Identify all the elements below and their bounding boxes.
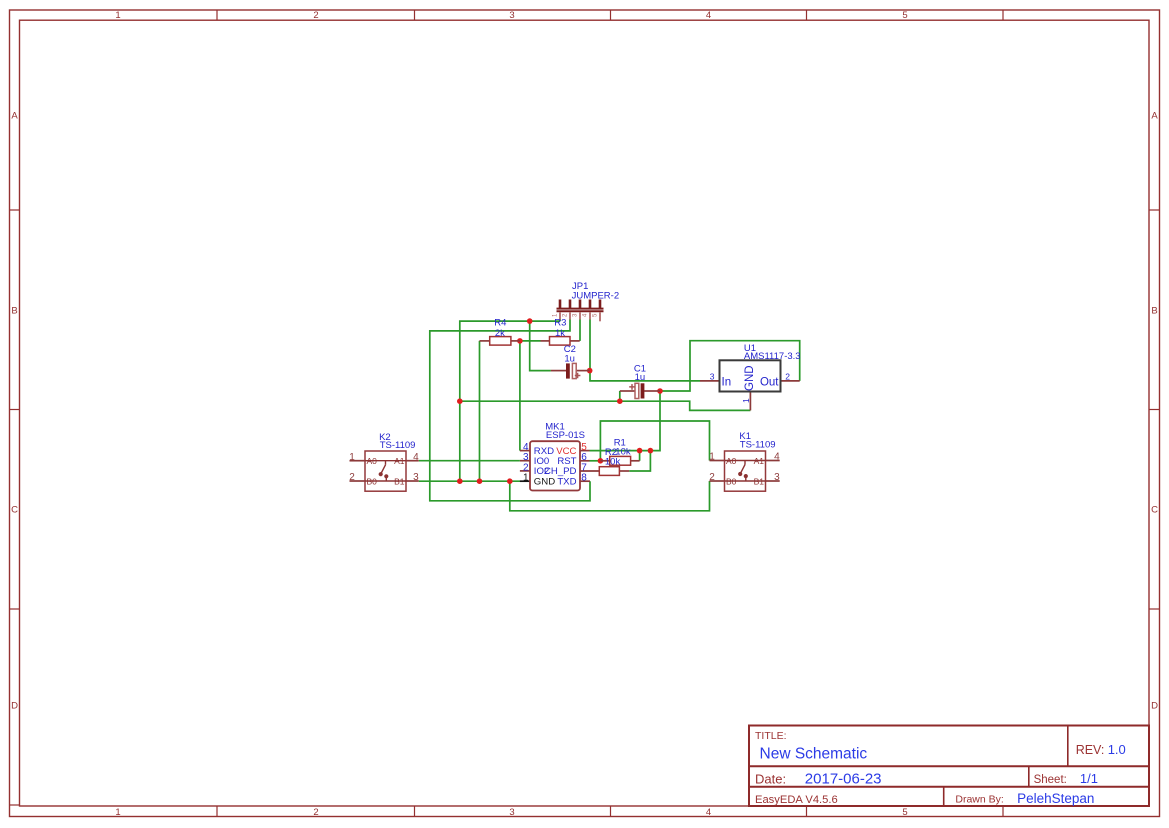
svg-text:4: 4 (706, 10, 711, 21)
svg-text:1u: 1u (564, 354, 575, 365)
svg-text:A0: A0 (726, 456, 737, 466)
svg-text:A1: A1 (754, 456, 765, 466)
svg-text:JUMPER-2: JUMPER-2 (572, 290, 620, 301)
svg-text:TXD: TXD (557, 476, 576, 487)
svg-text:3: 3 (509, 10, 514, 21)
svg-text:Out: Out (760, 376, 779, 388)
svg-text:B: B (1151, 306, 1157, 317)
svg-text:A: A (11, 111, 18, 122)
svg-text:1: 1 (741, 398, 751, 403)
svg-text:2: 2 (349, 472, 355, 483)
svg-text:1: 1 (523, 473, 529, 484)
svg-text:2: 2 (785, 371, 790, 381)
svg-text:R4: R4 (494, 318, 506, 329)
svg-text:GND: GND (744, 365, 756, 391)
svg-text:A1: A1 (394, 456, 405, 466)
svg-text:8: 8 (581, 473, 587, 484)
svg-text:10k: 10k (605, 457, 621, 468)
svg-text:4: 4 (774, 452, 780, 463)
svg-text:B1: B1 (754, 476, 765, 486)
svg-text:TITLE:: TITLE: (755, 730, 787, 742)
svg-text:A: A (1151, 111, 1158, 122)
svg-text:REV:: REV: (1076, 743, 1105, 757)
svg-text:4: 4 (413, 452, 419, 463)
svg-text:3: 3 (413, 472, 419, 483)
svg-text:1: 1 (349, 452, 355, 463)
svg-text:10k: 10k (615, 446, 631, 457)
svg-text:C: C (11, 505, 18, 516)
svg-text:B0: B0 (367, 476, 378, 486)
svg-text:B: B (11, 306, 17, 317)
svg-text:R3: R3 (554, 318, 566, 329)
svg-text:5: 5 (902, 10, 907, 21)
svg-text:PelehStepan: PelehStepan (1017, 791, 1094, 806)
svg-text:3: 3 (774, 472, 780, 483)
svg-text:3: 3 (509, 807, 514, 818)
svg-text:4: 4 (706, 807, 711, 818)
svg-text:2017-06-23: 2017-06-23 (805, 771, 882, 788)
svg-text:EasyEDA V4.5.6: EasyEDA V4.5.6 (755, 794, 838, 806)
svg-text:1: 1 (709, 452, 715, 463)
svg-text:1/1: 1/1 (1080, 771, 1098, 786)
svg-text:2: 2 (313, 10, 318, 21)
svg-text:1k: 1k (555, 328, 565, 339)
svg-text:B1: B1 (394, 476, 405, 486)
svg-text:A0: A0 (367, 456, 378, 466)
svg-text:Sheet:: Sheet: (1034, 774, 1067, 786)
svg-text:3: 3 (710, 371, 715, 381)
svg-text:Date:: Date: (755, 771, 786, 786)
svg-text:D: D (1151, 701, 1158, 712)
svg-text:2k: 2k (495, 328, 505, 339)
svg-text:B0: B0 (726, 476, 737, 486)
svg-text:1: 1 (115, 10, 120, 21)
svg-text:AMS1117-3.3: AMS1117-3.3 (744, 351, 801, 362)
svg-text:2: 2 (313, 807, 318, 818)
svg-text:TS-1109: TS-1109 (380, 440, 416, 451)
svg-text:ESP-01S: ESP-01S (546, 430, 585, 441)
svg-text:5: 5 (902, 807, 907, 818)
svg-text:GND: GND (534, 476, 555, 487)
svg-text:1.0: 1.0 (1108, 742, 1126, 757)
svg-text:New Schematic: New Schematic (760, 746, 868, 763)
svg-text:C: C (1151, 505, 1158, 516)
svg-text:1u: 1u (635, 372, 646, 383)
svg-text:In: In (722, 376, 732, 388)
svg-text:Drawn By:: Drawn By: (955, 793, 1003, 805)
svg-text:TS-1109: TS-1109 (740, 440, 776, 451)
svg-text:D: D (11, 701, 18, 712)
svg-text:2: 2 (709, 472, 715, 483)
svg-text:1: 1 (115, 807, 120, 818)
